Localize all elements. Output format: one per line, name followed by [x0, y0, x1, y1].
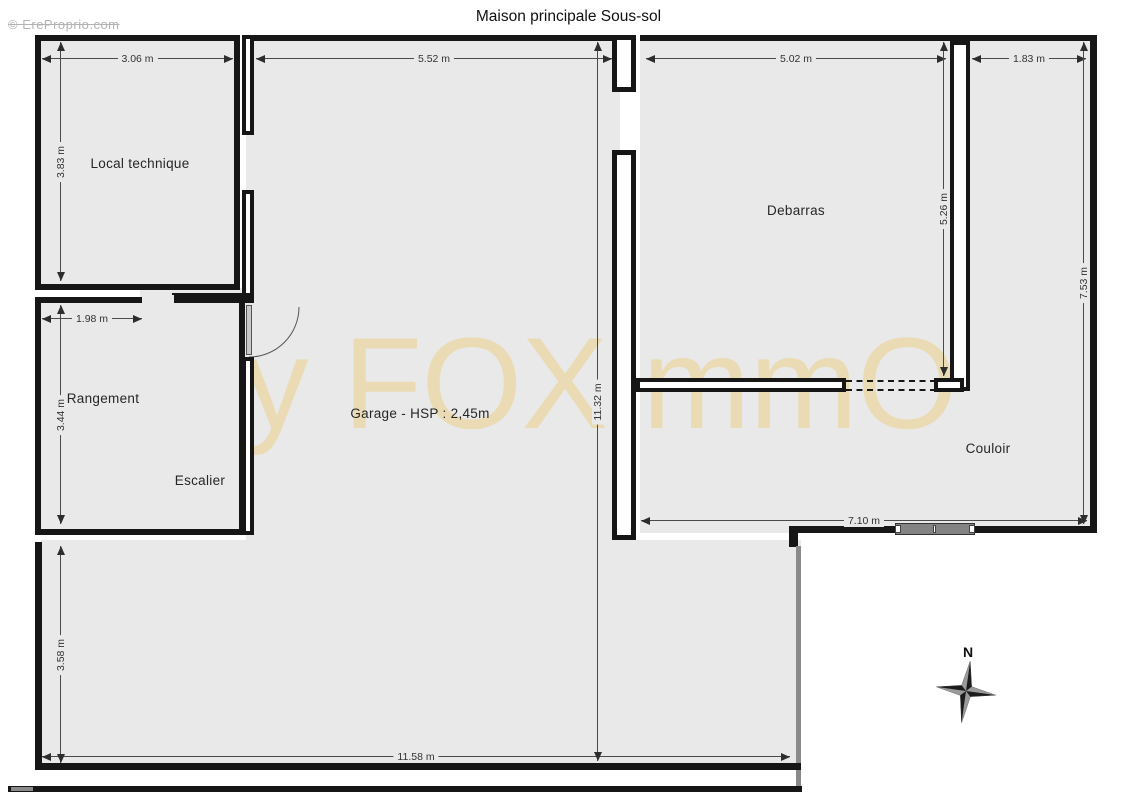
room-label-rangement: Rangement [43, 391, 163, 406]
right-boundary-wall [796, 546, 801, 792]
window-divider [933, 525, 936, 533]
arrow-left-icon [256, 55, 265, 63]
arrow-up-icon [1080, 42, 1088, 51]
top-right-wall [640, 35, 1097, 41]
arrow-up-icon [57, 42, 65, 51]
door-opening-patch [142, 295, 174, 305]
arrow-left-icon [646, 55, 655, 63]
dimension-label: 5.02 m [776, 53, 816, 65]
compass-rose-icon [933, 658, 999, 724]
dimension-label: 1.83 m [1009, 53, 1049, 65]
bottom-area-left-wall [35, 542, 42, 770]
wall-stub-upper [242, 35, 254, 135]
outer-boundary-wall [8, 786, 802, 792]
arrow-right-icon [133, 315, 142, 323]
page-title: Maison principale Sous-sol [0, 8, 1137, 26]
window-cap-left [895, 525, 901, 533]
dimension-bottom-width: 11.58 m [42, 756, 790, 757]
arrow-right-icon [781, 753, 790, 761]
arrow-down-icon [57, 272, 65, 281]
room-label-escalier: Escalier [160, 473, 240, 488]
mid-wall-stub [612, 35, 636, 92]
arrow-right-icon [937, 55, 946, 63]
room-label-garage: Garage - HSP : 2,45m [340, 406, 500, 421]
window-cap-right [969, 525, 975, 533]
arrow-left-icon [972, 55, 981, 63]
dimension-rangement-height: 3.44 m [60, 305, 61, 524]
copyright-watermark: © EreProprio.com [8, 17, 120, 32]
landing-top-wall [172, 293, 254, 300]
bottom-wall [35, 763, 801, 770]
floor-plan: Maison principale Sous-sol © EreProprio.… [0, 0, 1137, 800]
window [895, 523, 975, 535]
arrow-right-icon [603, 55, 612, 63]
dashed-opening [846, 380, 936, 391]
dimension-garage-height: 11.32 m [597, 42, 598, 761]
dimension-label: 11.58 m [393, 751, 438, 763]
dimension-label: 3.06 m [117, 53, 157, 65]
arrow-right-icon [1077, 55, 1086, 63]
debarras-bottom-wall [636, 378, 846, 392]
arrow-down-icon [57, 515, 65, 524]
garage-top-wall [250, 35, 618, 41]
garage-debarras-wall [612, 150, 636, 540]
arrow-up-icon [57, 305, 65, 314]
couloir-right-wall [1090, 35, 1097, 533]
dimension-debarras-width: 5.02 m [646, 58, 946, 59]
arrow-left-icon [42, 753, 51, 761]
dimension-couloir-width: 7.10 m [641, 520, 1087, 521]
arrow-left-icon [42, 315, 51, 323]
dimension-debarras-height: 5.26 m [943, 42, 944, 376]
debarras-bottom-wall-end [934, 378, 964, 392]
debarras-right-wall [950, 41, 970, 391]
dimension-bottom-height: 3.58 m [60, 546, 61, 763]
dimension-label: 7.10 m [844, 515, 884, 527]
dimension-label: 1.98 m [72, 313, 112, 325]
arrow-up-icon [594, 42, 602, 51]
dimension-label: 5.26 m [938, 189, 950, 229]
arrow-down-icon [940, 367, 948, 376]
arrow-left-icon [641, 517, 650, 525]
room-label-debarras: Debarras [740, 203, 852, 218]
dimension-garage-width: 5.52 m [256, 58, 612, 59]
dimension-label: 7.53 m [1078, 263, 1090, 303]
arrow-down-icon [594, 752, 602, 761]
dimension-label: 3.58 m [55, 634, 67, 674]
wall-stub-lower [242, 190, 254, 303]
arrow-left-icon [42, 55, 51, 63]
arrow-up-icon [57, 546, 65, 555]
bottom-area-floor [41, 540, 801, 770]
dimension-couloir-top-width: 1.83 m [972, 58, 1086, 59]
dimension-local-width: 3.06 m [42, 58, 233, 59]
arrow-down-icon [57, 754, 65, 763]
room-label-local-technique: Local technique [60, 156, 220, 171]
stair-right-wall [242, 357, 254, 535]
arrow-up-icon [940, 42, 948, 51]
arrow-down-icon [1080, 515, 1088, 524]
couloir-wall-notch [789, 526, 798, 547]
boundary-mark [11, 787, 33, 791]
dimension-label: 11.32 m [592, 379, 604, 424]
dimension-label: 5.52 m [414, 53, 454, 65]
dimension-couloir-height: 7.53 m [1083, 42, 1084, 524]
arrow-right-icon [224, 55, 233, 63]
dimension-rangement-door-width: 1.98 m [42, 318, 142, 319]
room-label-couloir: Couloir [938, 441, 1038, 456]
